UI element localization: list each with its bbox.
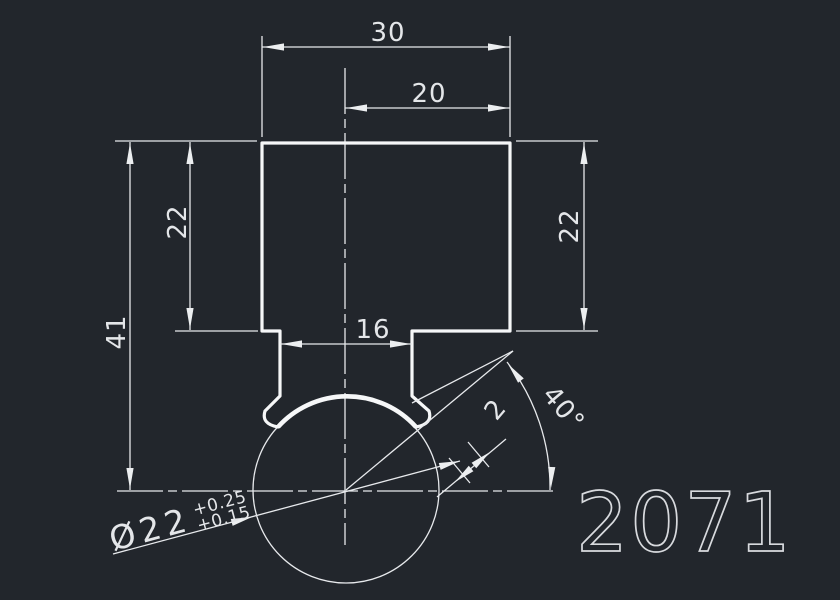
arrowhead	[580, 308, 587, 329]
arrowhead	[126, 143, 133, 164]
dim-line-2	[437, 439, 506, 497]
dimension-arrowheads	[126, 43, 587, 526]
part-number-text: 2071	[576, 476, 793, 571]
arrowhead	[508, 364, 524, 383]
ball-arc	[278, 396, 416, 427]
arrowhead	[186, 308, 193, 329]
dim-label-30: 30	[370, 18, 405, 48]
arrowhead	[439, 461, 460, 470]
arrowhead	[263, 43, 284, 50]
dim-label-22-right: 22	[555, 208, 585, 243]
cad-drawing-canvas[interactable]: 30 20 16 41 22 22 40° 2 Ø22 +0.25 +0.15 …	[0, 0, 840, 600]
arrowhead	[346, 104, 367, 111]
angle-40-arc	[507, 362, 550, 490]
arrowhead	[186, 143, 193, 164]
dim-label-41: 41	[102, 314, 132, 349]
extension-lines	[115, 36, 598, 483]
dimension-lines	[113, 47, 584, 554]
dimension-labels: 30 20 16 41 22 22 40° 2 Ø22 +0.25 +0.15	[102, 18, 590, 559]
diameter-label-group: Ø22 +0.25 +0.15	[105, 484, 253, 559]
centerlines	[117, 68, 558, 545]
dim-label-22-left: 22	[163, 204, 193, 239]
dim-label-16: 16	[355, 315, 390, 345]
arrowhead	[126, 468, 133, 489]
arrowhead	[488, 104, 509, 111]
dim-label-2: 2	[479, 393, 513, 426]
dim-label-20: 20	[411, 79, 446, 109]
arrowhead	[281, 340, 302, 347]
arrowhead	[488, 43, 509, 50]
dim-label-diameter: Ø22	[105, 500, 195, 559]
arrowhead	[580, 143, 587, 164]
arrowhead	[390, 340, 411, 347]
cad-drawing: 30 20 16 41 22 22 40° 2 Ø22 +0.25 +0.15 …	[0, 0, 840, 600]
dim-label-40deg: 40°	[536, 380, 591, 437]
